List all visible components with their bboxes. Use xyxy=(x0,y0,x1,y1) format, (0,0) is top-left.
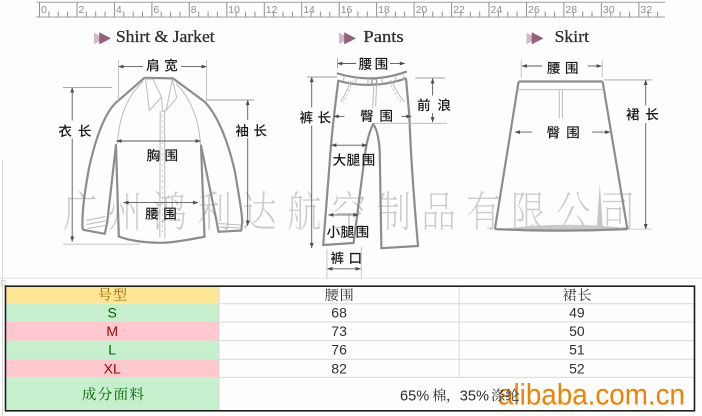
svg-text:10: 10 xyxy=(228,4,240,16)
svg-text:4: 4 xyxy=(116,4,122,16)
svg-text:49: 49 xyxy=(569,305,585,321)
svg-text:51: 51 xyxy=(569,342,585,358)
svg-text:50: 50 xyxy=(569,323,585,339)
svg-text:Skirt: Skirt xyxy=(555,27,590,46)
svg-text:18: 18 xyxy=(378,4,390,16)
svg-text:8: 8 xyxy=(191,4,197,16)
svg-text:26: 26 xyxy=(528,4,540,16)
svg-text:16: 16 xyxy=(341,4,353,16)
svg-text:Shirt & Jarket: Shirt & Jarket xyxy=(116,27,215,46)
svg-text:32: 32 xyxy=(640,4,652,16)
svg-text:M: M xyxy=(106,323,118,339)
svg-text:Pants: Pants xyxy=(363,27,403,46)
svg-text:82: 82 xyxy=(331,360,347,376)
svg-text:30: 30 xyxy=(603,4,615,16)
svg-text:22: 22 xyxy=(453,4,465,16)
svg-text:65%: 65% xyxy=(400,388,429,404)
svg-text:12: 12 xyxy=(266,4,278,16)
svg-text:28: 28 xyxy=(565,4,577,16)
svg-text:14: 14 xyxy=(303,4,315,16)
svg-text:76: 76 xyxy=(331,342,347,358)
svg-text:alibaba.com.cn: alibaba.com.cn xyxy=(498,379,685,412)
svg-text:L: L xyxy=(108,342,116,358)
svg-text:73: 73 xyxy=(331,323,347,339)
svg-text:XL: XL xyxy=(104,360,121,376)
svg-text:6: 6 xyxy=(153,4,159,16)
svg-text:S: S xyxy=(108,305,117,321)
svg-text:68: 68 xyxy=(331,305,347,321)
svg-text:20: 20 xyxy=(416,4,428,16)
svg-text:35%: 35% xyxy=(460,388,489,404)
svg-text:0: 0 xyxy=(41,4,47,16)
svg-text:24: 24 xyxy=(491,4,503,16)
svg-text:52: 52 xyxy=(569,360,585,376)
svg-text:2: 2 xyxy=(79,4,85,16)
